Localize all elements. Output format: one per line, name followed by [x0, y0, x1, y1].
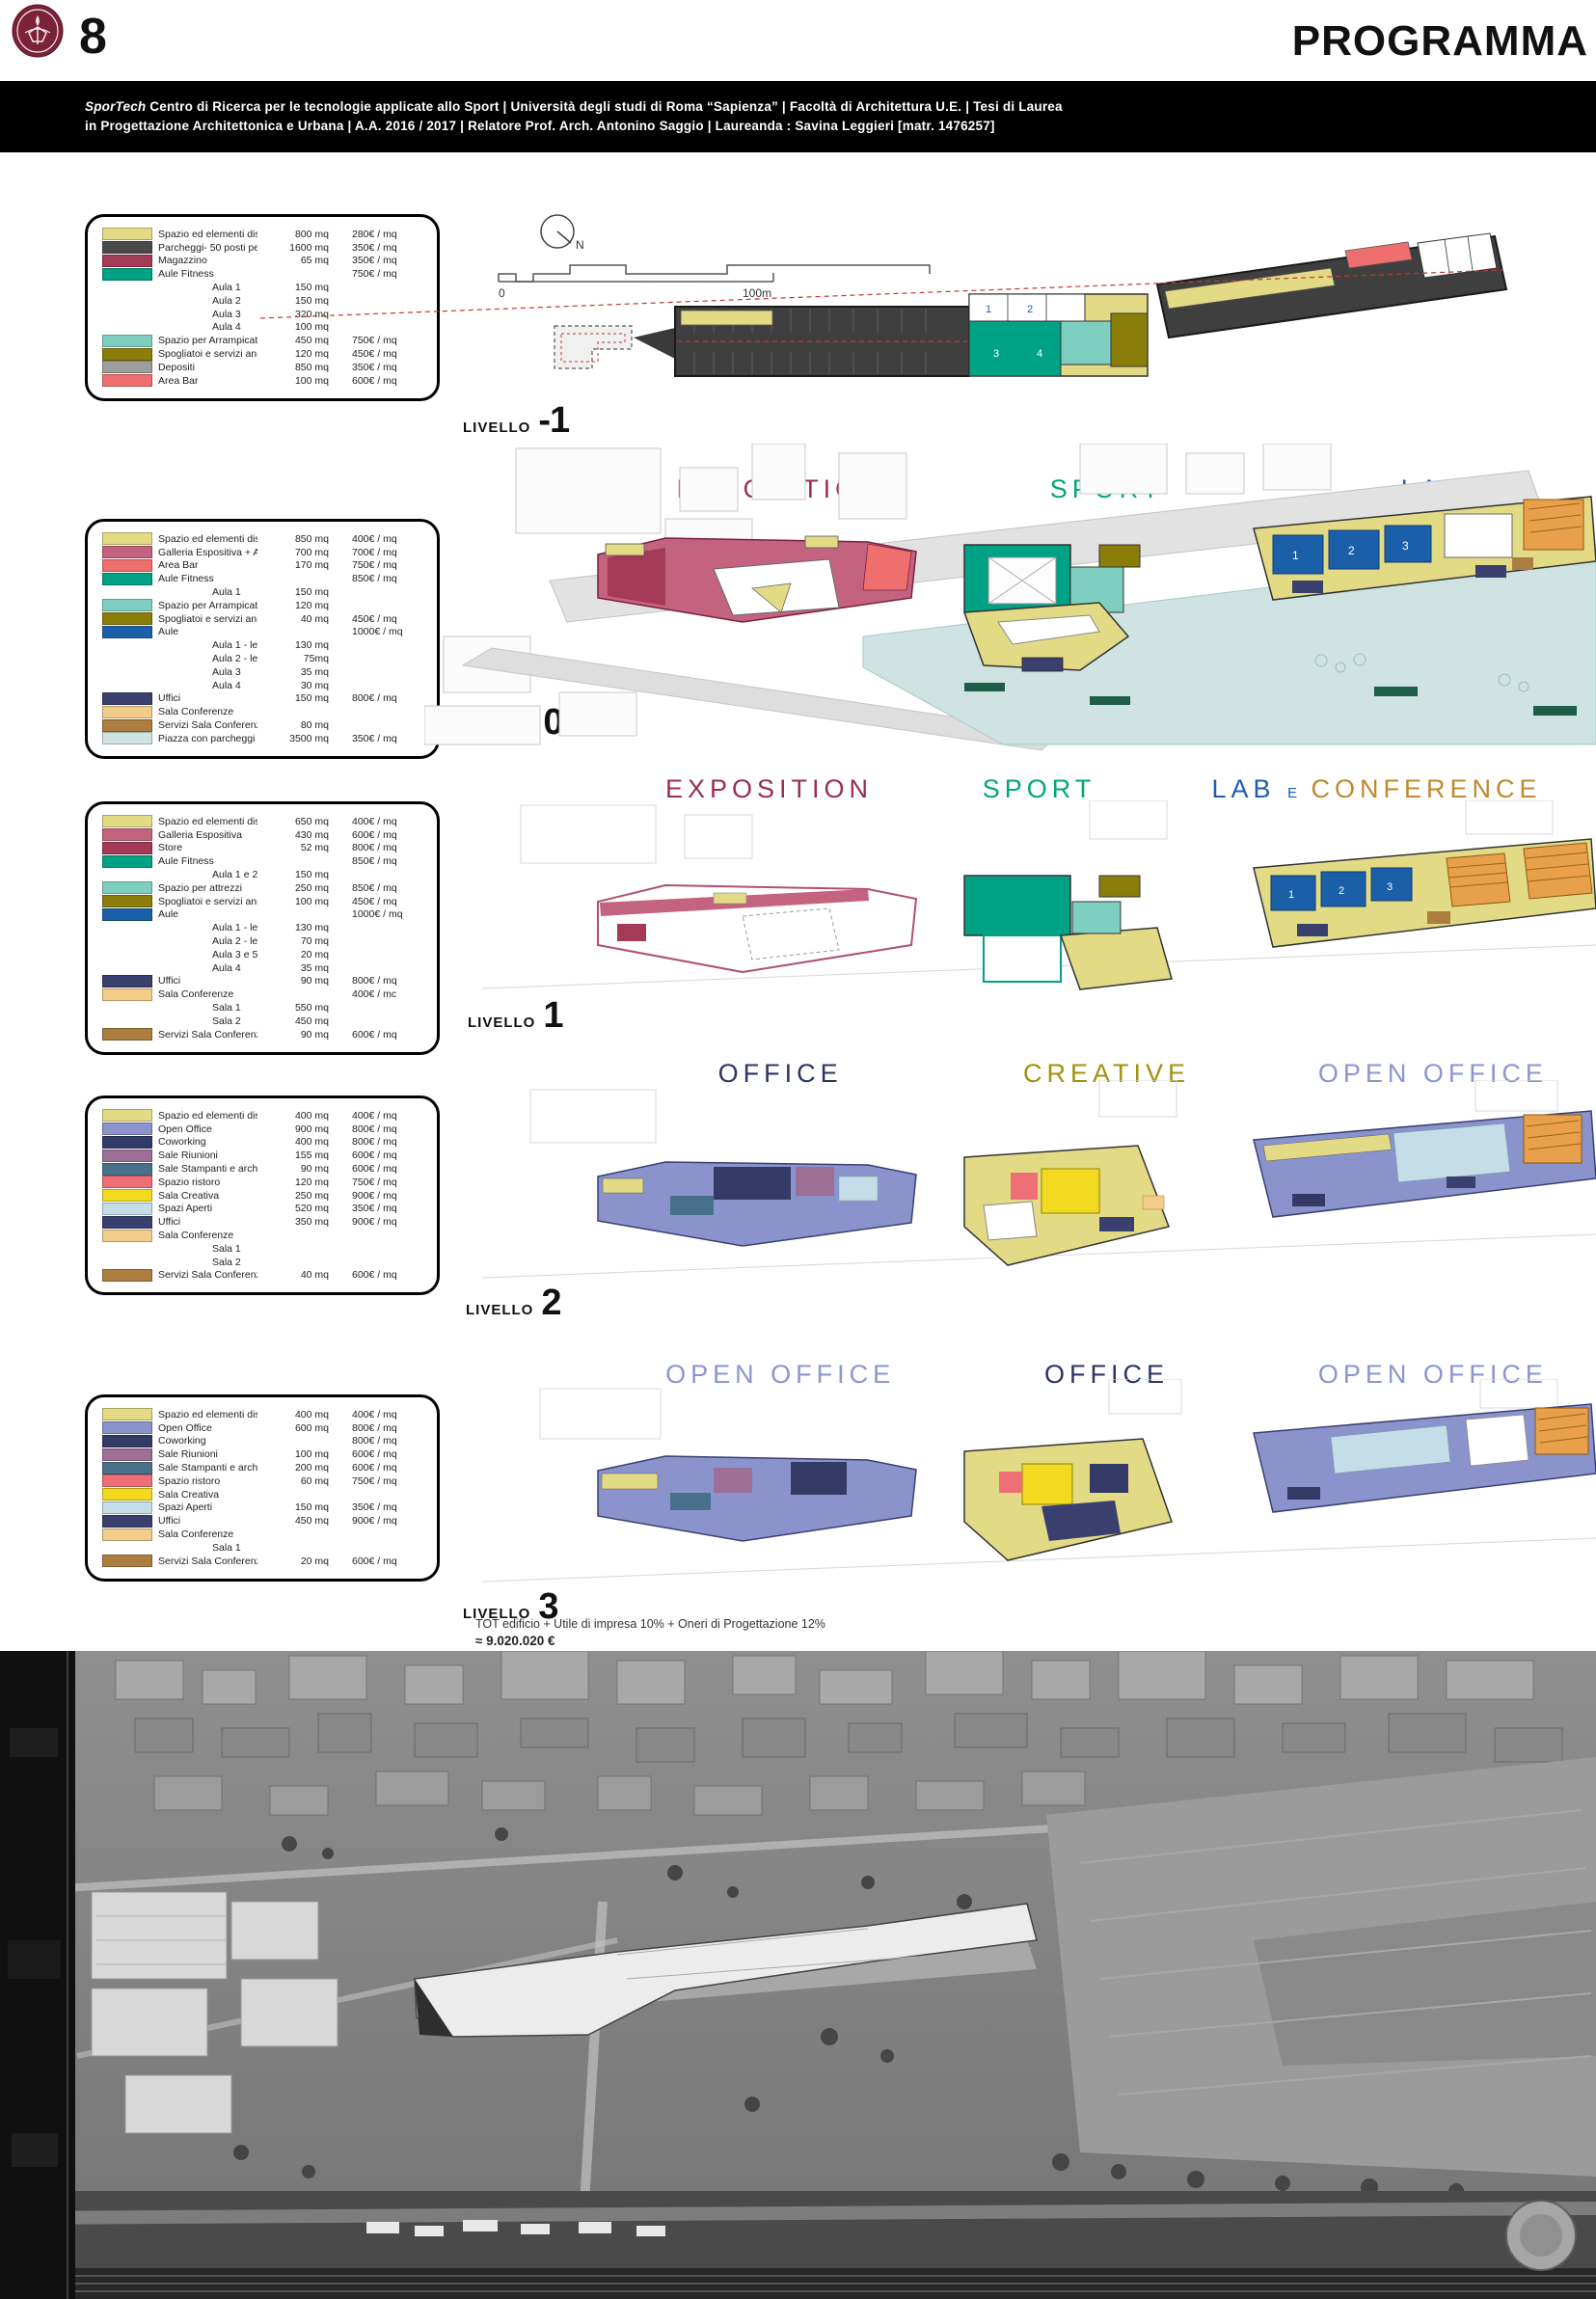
floor-plan-level-minus1: N 0 100m	[260, 193, 1596, 415]
legend-price: 800€ / mq	[337, 1435, 425, 1447]
legend-row: Sala Conferenze	[102, 1229, 425, 1242]
legend-label: Sale Riunioni	[158, 1448, 257, 1460]
legend-label: Sala Creativa	[158, 1489, 257, 1501]
legend-area: 250 mq	[265, 1190, 329, 1202]
legend-row: Area Bar 170 mq 750€ / mq	[102, 559, 425, 573]
legend-swatch	[102, 1421, 152, 1434]
svg-text:3: 3	[1402, 539, 1409, 553]
legend-price: 850€ / mq	[337, 573, 425, 584]
legend-price: 600€ / mq	[337, 1029, 425, 1041]
legend-label: Aula 1	[158, 282, 257, 293]
legend-swatch	[102, 1408, 152, 1420]
legend-row: Sale Stampanti e archivi 90 mq 600€ / mq	[102, 1162, 425, 1176]
legend-area: 90 mq	[265, 1029, 329, 1041]
legend-row: Spazi Aperti 520 mq 350€ / mq	[102, 1203, 425, 1216]
legend-row: Sala 1 550 mq	[102, 1001, 425, 1014]
floor-plan-level-1: 1 2 3	[424, 800, 1596, 1008]
legend-label: Spazio per Arrampicata	[158, 600, 257, 611]
legend-row: Aula 4 30 mq	[102, 679, 425, 692]
legend-swatch	[102, 719, 152, 732]
legend-swatch	[102, 1122, 152, 1135]
legend-price: 1000€ / mq	[337, 908, 425, 920]
legend-row: Spazio per attrezzi 250 mq 850€ / mq	[102, 881, 425, 895]
legend-label: Magazzino	[158, 255, 257, 266]
exposition-building	[598, 885, 916, 972]
legend-price: 400€ / mc	[337, 988, 425, 1000]
legend-swatch	[102, 692, 152, 705]
legend-row: Aule 1000€ / mq	[102, 908, 425, 922]
legend-row: Spazio ed elementi distributivi + serviz…	[102, 1109, 425, 1122]
legend-swatch	[102, 815, 152, 827]
legend-area: 40 mq	[265, 1269, 329, 1281]
legend-swatch	[102, 1176, 152, 1188]
floor-plan-level-2	[424, 1080, 1596, 1297]
legend-label: Servizi Sala Conferenze	[158, 719, 257, 731]
legend-swatch	[102, 1435, 152, 1447]
legend-label: Aula 1 e 2	[158, 869, 257, 880]
legend-label: Coworking	[158, 1136, 257, 1148]
legend-area: 200 mq	[265, 1462, 329, 1474]
legend-label: Spogliatoi e servizi annessi	[158, 896, 257, 907]
legend-swatch	[102, 975, 152, 987]
legend-price: 600€ / mq	[337, 1555, 425, 1567]
legend-price: 700€ / mq	[337, 547, 425, 558]
legend-swatch	[102, 1501, 152, 1514]
legend-swatch	[102, 1515, 152, 1528]
legend-row: Spogliatoi e servizi annessi 100 mq 450€…	[102, 895, 425, 908]
legend-row: Galleria Espositiva 430 mq 600€ / mq	[102, 828, 425, 842]
legend-label: Uffici	[158, 1216, 257, 1228]
field	[1046, 1757, 1596, 2177]
legend-label: Aula 4	[158, 321, 257, 333]
page-number: 8	[79, 8, 105, 66]
legend-label: Spazio ed elementi distributivi + serviz…	[158, 1409, 257, 1420]
legend-label: Area Bar	[158, 559, 257, 571]
presentation-board: 8 PROGRAMMA SporTech Centro di Ricerca p…	[0, 0, 1596, 2299]
legend-swatch	[102, 348, 152, 361]
legend-area: 150 mq	[265, 692, 329, 704]
legend-swatch	[102, 842, 152, 854]
legend-swatch	[102, 881, 152, 894]
legend-swatch	[102, 559, 152, 572]
legend-level-0: Spazio ed elementi distributivi + serviz…	[85, 519, 440, 759]
svg-text:2: 2	[1027, 304, 1033, 315]
legend-swatch	[102, 255, 152, 267]
legend-row: Coworking 800€ / mq	[102, 1435, 425, 1448]
legend-row: Servizi Sala Conferenze 80 mq	[102, 718, 425, 732]
legend-area: 20 mq	[265, 1555, 329, 1567]
legend-label: Spazio per Arrampicata e distributivo	[158, 335, 257, 346]
legend-swatch	[102, 374, 152, 387]
legend-label: Aula 3 e 5	[158, 949, 257, 960]
legend-row: Servizi Sala Conferenze 40 mq 600€ / mq	[102, 1269, 425, 1283]
legend-price: 400€ / mq	[337, 1409, 425, 1420]
legend-label: Aula 4	[158, 680, 257, 691]
legend-price: 800€ / mq	[337, 1422, 425, 1434]
legend-price: 400€ / mq	[337, 816, 425, 827]
legend-row: Spazio ed elementi distributivi + serviz…	[102, 815, 425, 828]
legend-swatch	[102, 241, 152, 254]
legend-area: 90 mq	[265, 975, 329, 987]
creative-building	[964, 1146, 1169, 1265]
legend-swatch	[102, 1136, 152, 1149]
legend-price: 1000€ / mq	[337, 626, 425, 637]
legend-label: Aula 1 - lezioni frontali	[158, 639, 257, 651]
legend-label: Spazio ed elementi distributivi + serviz…	[158, 816, 257, 827]
svg-text:1: 1	[1288, 889, 1294, 901]
legend-label: Sale Riunioni	[158, 1149, 257, 1161]
legend-row: Sala 2 450 mq	[102, 1014, 425, 1028]
legend-row: Aula 1 - lezioni frontali 130 mq	[102, 921, 425, 934]
legend-row: Sala Creativa	[102, 1488, 425, 1501]
legend-price: 400€ / mq	[337, 533, 425, 545]
legend-label: Uffici	[158, 692, 257, 704]
brand-name: SporTech	[85, 99, 146, 114]
svg-text:2: 2	[1348, 544, 1355, 557]
legend-row: Spazio ristoro 120 mq 750€ / mq	[102, 1176, 425, 1189]
legend-price: 850€ / mq	[337, 882, 425, 894]
legend-label: Open Office	[158, 1123, 257, 1135]
svg-text:3: 3	[993, 348, 999, 360]
north-arrow-icon: N	[541, 215, 584, 252]
legend-price: 600€ / mq	[337, 1462, 425, 1474]
legend-area: 100 mq	[265, 896, 329, 907]
legend-price: 450€ / mq	[337, 613, 425, 625]
legend-area: 450 mq	[265, 1515, 329, 1527]
legend-row: Spazi Aperti 150 mq 350€ / mq	[102, 1501, 425, 1515]
legend-label: Aule Fitness	[158, 855, 257, 867]
legend-row: Aula 3 e 5 20 mq	[102, 948, 425, 961]
legend-price: 350€ / mq	[337, 1501, 425, 1513]
legend-row: Coworking 400 mq 800€ / mq	[102, 1136, 425, 1149]
legend-swatch	[102, 1269, 152, 1282]
legend-row: Servizi Sala Conferenze 20 mq 600€ / mq	[102, 1555, 425, 1568]
legend-label: Sala Conferenze	[158, 1230, 257, 1241]
left-shadow-strip	[0, 1651, 75, 2299]
legend-swatch	[102, 895, 152, 907]
legend-area: 520 mq	[265, 1203, 329, 1214]
legend-price: 600€ / mq	[337, 1448, 425, 1460]
open-office-building	[1254, 1111, 1596, 1217]
legend-label: Spazio per attrezzi	[158, 882, 257, 894]
legend-area: 550 mq	[265, 1002, 329, 1014]
page-title: PROGRAMMA	[1292, 17, 1588, 66]
subtitle-line-2: in Progettazione Architettonica e Urbana…	[85, 117, 1223, 136]
legend-area: 52 mq	[265, 842, 329, 853]
legend-label: Spazio ed elementi distributivi + serviz…	[158, 229, 257, 240]
legend-area: 20 mq	[265, 949, 329, 960]
legend-swatch	[102, 855, 152, 868]
legend-price: 600€ / mq	[337, 1149, 425, 1161]
open-office-building-right	[1254, 1404, 1596, 1512]
legend-area: 75mq	[265, 653, 329, 664]
legend-price: 800€ / mq	[337, 842, 425, 853]
legend-label: Sala 2	[158, 1015, 257, 1027]
legend-label: Open Office	[158, 1422, 257, 1434]
legend-row: Uffici 150 mq 800€ / mq	[102, 692, 425, 706]
legend-price: 600€ / mq	[337, 829, 425, 841]
legend-label: Spazio ristoro	[158, 1177, 257, 1188]
legend-swatch	[102, 1230, 152, 1242]
legend-label: Store	[158, 842, 257, 853]
legend-label: Aula 2 - lezioni frontali	[158, 653, 257, 664]
legend-price: 350€ / mq	[337, 1203, 425, 1214]
legend-row: Aula 1 150 mq	[102, 585, 425, 599]
title-bar: SporTech Centro di Ricerca per le tecnol…	[0, 81, 1596, 152]
sapienza-logo	[12, 4, 64, 58]
legend-label: Aula 1	[158, 586, 257, 598]
open-office-building-left	[598, 1456, 916, 1541]
total-formula: TOT edificio + Utile di impresa 10% + On…	[475, 1616, 825, 1633]
legend-swatch	[102, 1216, 152, 1229]
legend-label: Aula 4	[158, 962, 257, 974]
legend-label: Area Bar	[158, 375, 257, 387]
legend-label: Depositi	[158, 362, 257, 373]
floor-plan-level-0: 1 2 3	[424, 444, 1596, 752]
floor-plan-level-3	[424, 1379, 1596, 1601]
legend-label: Sala 1	[158, 1002, 257, 1014]
legend-label: Spazi Aperti	[158, 1203, 257, 1214]
legend-area: 350 mq	[265, 1216, 329, 1228]
legend-label: Servizi Sala Conferenze	[158, 1555, 257, 1567]
scale-start-label: 0	[499, 286, 505, 300]
legend-row: Open Office 600 mq 800€ / mq	[102, 1421, 425, 1435]
legend-price: 800€ / mq	[337, 975, 425, 987]
legend-label: Sale Stampanti e archivi	[158, 1163, 257, 1175]
legend-swatch	[102, 268, 152, 281]
legend-row: Sala 2	[102, 1256, 425, 1269]
legend-level-1: Spazio ed elementi distributivi + serviz…	[85, 801, 440, 1055]
legend-price: 800€ / mq	[337, 1123, 425, 1135]
legend-label: Spazi Aperti	[158, 1501, 257, 1513]
legend-row: Aule Fitness 850€ / mq	[102, 854, 425, 868]
legend-area: 90 mq	[265, 1163, 329, 1175]
legend-label: Sala 2	[158, 1257, 257, 1268]
legend-label: Aula 1 - lezioni frontali	[158, 922, 257, 933]
legend-row: Sale Riunioni 100 mq 600€ / mq	[102, 1447, 425, 1461]
legend-label: Aule	[158, 908, 257, 920]
legend-label: Galleria Espositiva + Area Biglietteria	[158, 547, 257, 558]
aerial-photo	[0, 1651, 1596, 2299]
legend-swatch	[102, 828, 152, 841]
legend-price: 900€ / mq	[337, 1515, 425, 1527]
svg-text:1: 1	[1292, 549, 1299, 562]
legend-area: 100 mq	[265, 1448, 329, 1460]
legend-row: Aula 2 - lezioni frontali 75mq	[102, 652, 425, 665]
legend-swatch	[102, 228, 152, 240]
legend-swatch	[102, 988, 152, 1001]
legend-swatch	[102, 1528, 152, 1541]
legend-price: 350€ / mq	[337, 733, 425, 744]
legend-label: Coworking	[158, 1435, 257, 1447]
svg-text:3: 3	[1387, 881, 1393, 893]
legend-area: 150 mq	[265, 586, 329, 598]
legend-row: Store 52 mq 800€ / mq	[102, 842, 425, 855]
legend-label: Spazio ed elementi distributivi + serviz…	[158, 1110, 257, 1122]
legend-row: Uffici 350 mq 900€ / mq	[102, 1215, 425, 1229]
legend-swatch	[102, 1448, 152, 1461]
legend-area: 150 mq	[265, 1501, 329, 1513]
legend-swatch	[102, 626, 152, 638]
legend-label: Sala Conferenze	[158, 706, 257, 717]
legend-swatch	[102, 612, 152, 625]
totals-block: TOT edificio + Utile di impresa 10% + On…	[475, 1616, 825, 1650]
legend-area: 900 mq	[265, 1123, 329, 1135]
legend-area: 130 mq	[265, 639, 329, 651]
legend-level-3: Spazio ed elementi distributivi + serviz…	[85, 1394, 440, 1582]
legend-level-2: Spazio ed elementi distributivi + serviz…	[85, 1095, 440, 1295]
legend-area: 35 mq	[265, 666, 329, 678]
legend-label: Uffici	[158, 1515, 257, 1527]
legend-swatch	[102, 732, 152, 744]
legend-price: 750€ / mq	[337, 559, 425, 571]
legend-label: Sale Stampanti e archivi	[158, 1462, 257, 1474]
legend-label: Spogliatoi e servizi annessi	[158, 348, 257, 360]
legend-area: 700 mq	[265, 547, 329, 558]
legend-label: Spogliatoi e servizi annessi	[158, 613, 257, 625]
legend-row: Open Office 900 mq 800€ / mq	[102, 1122, 425, 1136]
legend-price: 800€ / mq	[337, 1136, 425, 1148]
legend-row: Spazio per Arrampicata 120 mq	[102, 599, 425, 612]
legend-row: Aula 4 35 mq	[102, 961, 425, 975]
total-amount: ≈ 9.020.020 €	[475, 1633, 825, 1650]
legend-swatch	[102, 908, 152, 921]
rail-band	[0, 2191, 1596, 2299]
legend-swatch	[102, 1028, 152, 1041]
legend-label: Aule Fitness	[158, 268, 257, 280]
legend-swatch	[102, 335, 152, 347]
legend-row: Spazio ristoro 60 mq 750€ / mq	[102, 1474, 425, 1488]
legend-row: Sale Riunioni 155 mq 600€ / mq	[102, 1149, 425, 1162]
legend-label: Galleria Espositiva	[158, 829, 257, 841]
legend-price: 600€ / mq	[337, 1163, 425, 1175]
legend-row: Spazio ed elementi distributivi + serviz…	[102, 532, 425, 546]
legend-label: Aule	[158, 626, 257, 637]
legend-area: 450 mq	[265, 1015, 329, 1027]
legend-area: 430 mq	[265, 829, 329, 841]
legend-row: Aule Fitness 850€ / mq	[102, 572, 425, 585]
legend-row: Uffici 450 mq 900€ / mq	[102, 1514, 425, 1528]
legend-swatch	[102, 1488, 152, 1501]
legend-label: Sala Conferenze	[158, 988, 257, 1000]
legend-swatch	[102, 361, 152, 373]
legend-row: Sale Stampanti e archivi 200 mq 600€ / m…	[102, 1461, 425, 1474]
legend-label: Sala 1	[158, 1542, 257, 1554]
legend-price: 400€ / mq	[337, 1110, 425, 1122]
legend-area: 120 mq	[265, 600, 329, 611]
legend-label: Sala Creativa	[158, 1190, 257, 1202]
lab-conference-building: 1 2 3	[1254, 839, 1596, 947]
legend-label: Aule Fitness	[158, 573, 257, 584]
legend-row: Sala Conferenze	[102, 705, 425, 718]
legend-label: Servizi Sala Conferenze	[158, 1029, 257, 1041]
legend-swatch	[102, 573, 152, 585]
legend-area: 80 mq	[265, 719, 329, 731]
legend-row: Servizi Sala Conferenze 90 mq 600€ / mq	[102, 1028, 425, 1041]
legend-area: 70 mq	[265, 935, 329, 947]
legend-label: Spazio ristoro	[158, 1475, 257, 1487]
legend-swatch	[102, 1149, 152, 1162]
legend-row: Aula 2 - lezioni frontali 70 mq	[102, 934, 425, 948]
legend-area: 850 mq	[265, 533, 329, 545]
legend-swatch	[102, 1163, 152, 1176]
legend-row: Aule 1000€ / mq	[102, 626, 425, 639]
legend-swatch	[102, 1203, 152, 1215]
legend-area: 400 mq	[265, 1110, 329, 1122]
svg-text:N: N	[576, 238, 584, 252]
legend-area: 40 mq	[265, 613, 329, 625]
office-building	[598, 1162, 916, 1246]
legend-area: 60 mq	[265, 1475, 329, 1487]
legend-area: 400 mq	[265, 1136, 329, 1148]
svg-text:4: 4	[1037, 348, 1042, 360]
legend-label: Sala 1	[158, 1243, 257, 1255]
legend-label: Piazza con parcheggi bici	[158, 733, 257, 744]
legend-area: 170 mq	[265, 559, 329, 571]
legend-row: Sala 1	[102, 1242, 425, 1256]
legend-price: 800€ / mq	[337, 692, 425, 704]
legend-row: Spogliatoi e servizi annessi 40 mq 450€ …	[102, 612, 425, 626]
legend-row: Aula 3 35 mq	[102, 665, 425, 679]
legend-row: Uffici 90 mq 800€ / mq	[102, 975, 425, 988]
legend-area: 150 mq	[265, 869, 329, 880]
legend-row: Sala 1	[102, 1541, 425, 1555]
legend-swatch	[102, 1474, 152, 1487]
legend-price: 450€ / mq	[337, 896, 425, 907]
legend-price: 750€ / mq	[337, 1475, 425, 1487]
legend-row: Spazio ed elementi distributivi + serviz…	[102, 1408, 425, 1421]
sport-building	[964, 876, 1172, 989]
legend-area: 130 mq	[265, 922, 329, 933]
legend-swatch	[102, 1189, 152, 1202]
legend-price: 900€ / mq	[337, 1190, 425, 1202]
legend-price: 750€ / mq	[337, 1177, 425, 1188]
legend-label: Uffici	[158, 975, 257, 987]
legend-area: 400 mq	[265, 1409, 329, 1420]
scale-bar	[499, 265, 930, 282]
legend-row: Sala Conferenze	[102, 1528, 425, 1541]
legend-area: 600 mq	[265, 1422, 329, 1434]
legend-label: Aula 3	[158, 666, 257, 678]
legend-area: 35 mq	[265, 962, 329, 974]
office-building-center	[964, 1439, 1172, 1560]
legend-row: Aula 1 e 2 150 mq	[102, 868, 425, 881]
svg-text:1: 1	[986, 304, 991, 315]
legend-area: 120 mq	[265, 1177, 329, 1188]
legend-row: Piazza con parcheggi bici 3500 mq 350€ /…	[102, 732, 425, 745]
legend-row: Galleria Espositiva + Area Biglietteria …	[102, 546, 425, 559]
legend-label: Spazio ed elementi distributivi + serviz…	[158, 533, 257, 545]
legend-label: Parcheggi- 50 posti per piano	[158, 242, 257, 254]
legend-price: 900€ / mq	[337, 1216, 425, 1228]
legend-swatch	[102, 532, 152, 545]
legend-row: Aula 1 - lezioni frontali 130 mq	[102, 638, 425, 652]
legend-price: 850€ / mq	[337, 855, 425, 867]
legend-area: 155 mq	[265, 1149, 329, 1161]
svg-text:2: 2	[1339, 885, 1344, 897]
legend-row: Sala Creativa 250 mq 900€ / mq	[102, 1189, 425, 1203]
legend-swatch	[102, 1109, 152, 1122]
legend-swatch	[102, 1555, 152, 1567]
scale-end-label: 100m	[743, 286, 771, 300]
legend-area: 3500 mq	[265, 733, 329, 744]
legend-label: Aula 2 - lezioni frontali	[158, 935, 257, 947]
legend-price: 600€ / mq	[337, 1269, 425, 1281]
legend-row: Sala Conferenze 400€ / mc	[102, 987, 425, 1001]
legend-area: 30 mq	[265, 680, 329, 691]
legend-swatch	[102, 1462, 152, 1474]
legend-label: Aula 2	[158, 295, 257, 307]
